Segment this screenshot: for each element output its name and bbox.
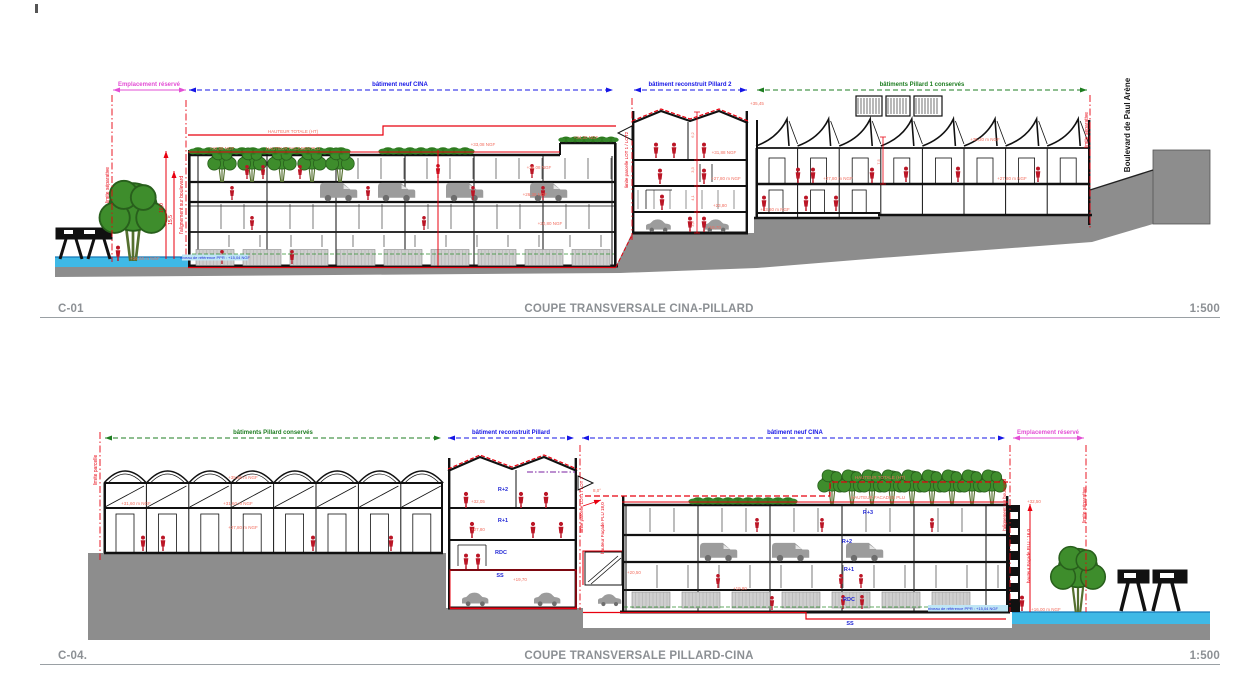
garage-door	[290, 250, 328, 266]
annotation-label: +20,50	[627, 570, 641, 575]
annotation-label: niveau de référence PPR : +15,04 NGF	[180, 255, 250, 260]
c01-title: COUPE TRANSVERSALE CINA-PILLARD	[278, 303, 1000, 315]
garage-door	[682, 592, 720, 608]
span-label-emplacement-reserve: Emplacement réservé	[1017, 430, 1080, 436]
balcony-slot	[1010, 528, 1018, 535]
garage-door	[732, 592, 770, 608]
garage-door	[572, 250, 610, 266]
annotation-label: +35,66 m NGF	[228, 475, 258, 480]
span-label-batiment-reconstruit-pillard-2: bâtiment reconstruit Pillard 2	[648, 82, 732, 88]
annotation-label: +20,80 NGF	[538, 221, 563, 226]
c04-scale: 1:500	[1000, 650, 1220, 662]
annotation-label: +32,05	[471, 499, 485, 504]
section-c04: bâtiments Pillard conservésbâtiment reco…	[88, 430, 1210, 640]
boundary-label: limite séparative	[1084, 112, 1090, 148]
balcony-slot	[1010, 576, 1018, 583]
annotation-label: +19,80	[733, 586, 747, 591]
annotation-label: +23,80 m NGF	[760, 207, 790, 212]
car-icon	[598, 594, 621, 606]
storey-label: SS	[846, 621, 854, 627]
storey-label: R+3	[863, 510, 873, 516]
annotation-label: +23,80	[713, 203, 727, 208]
dimension-label: 6,2	[690, 131, 695, 137]
storey-label: SS	[496, 573, 504, 579]
annotation-label: HAUTEUR FACADES PLU	[266, 146, 320, 151]
roof-shrub	[603, 136, 618, 142]
annotation-label: HAUTEUR TOTALE (HT)	[855, 475, 906, 480]
street-name: Boulevard de Paul Arène	[1123, 77, 1132, 172]
dimension-label: 4,1	[690, 194, 695, 200]
c04-batiment-neuf-cina	[620, 496, 1020, 612]
c01-ref: C-01	[40, 303, 278, 315]
boundary-label: limite séparative	[1082, 487, 1088, 523]
boundary-label: limite parcelle LOT 1 / LOT2	[624, 131, 629, 188]
c04-ref: C-04.	[40, 650, 278, 662]
dimension-label: 18,0	[159, 203, 165, 213]
dimension-label: 3,3	[690, 166, 695, 172]
c01-title-rule	[40, 317, 1220, 318]
large-tree	[1051, 547, 1106, 612]
garage-door	[431, 250, 469, 266]
storey-label: RDC	[843, 597, 855, 603]
span-label-batiment-neuf-cina: bâtiment neuf CINA	[372, 82, 428, 88]
c01-boulevard-wall	[1153, 150, 1210, 224]
annotation-label: +34,30 NGF	[574, 135, 599, 140]
c04-title-row: C-04. COUPE TRANSVERSALE PILLARD-CINA 1:…	[40, 650, 1220, 662]
annotation-label: +32,50	[1027, 499, 1041, 504]
drawing-sheet: Emplacement réservébâtiment neuf CINAbât…	[0, 0, 1260, 682]
annotation-label: +19,70	[707, 225, 721, 230]
storey-label: R+1	[844, 567, 854, 573]
annotation-label: +33,08 NGF	[471, 142, 496, 147]
c04-annex-structure	[583, 551, 622, 585]
annotation-label: +31,88 NGF	[712, 150, 737, 155]
annotation-label: +27,80 m NGF	[997, 176, 1027, 181]
garage-door	[478, 250, 516, 266]
c01-cina-garage-doors	[196, 250, 610, 266]
garage-door	[384, 250, 422, 266]
annotation-label: +30,08 NGF	[527, 165, 552, 170]
annotation-label: niveau de référence PPR : +15,04 NGF	[928, 606, 998, 611]
garage-door	[632, 592, 670, 608]
c01-water	[55, 257, 188, 267]
annotation-label: +27,80 m NGF	[711, 176, 741, 181]
boundary-label: l'alignement sur boulevard	[179, 176, 185, 234]
span-label-batiment-reconstruit-pillard: bâtiment reconstruit Pillard	[472, 430, 550, 436]
c04-title-rule	[40, 664, 1220, 665]
c04-batiment-reconstruit-pillard	[448, 455, 577, 608]
sheet-mark	[35, 4, 38, 13]
annotation-label: +16,00 m NGF	[1031, 607, 1061, 612]
annotation-label: HAUTEUR TOTALE (HT)	[268, 129, 319, 134]
c04-title: COUPE TRANSVERSALE PILLARD-CINA	[278, 650, 1000, 662]
c04-cina-garage-doors	[632, 592, 970, 608]
storey-label: R+1	[498, 518, 508, 524]
dimension-label: 7,5	[876, 158, 881, 164]
annotation-label: +35,30 m NGF	[970, 137, 1000, 142]
storey-label: R+2	[842, 539, 852, 545]
annotation-label: +31,60 m NGF	[223, 501, 253, 506]
balcony-slot	[1010, 592, 1018, 599]
span-label-batiments-pillard-conserves: bâtiments Pillard conservés	[233, 430, 313, 436]
balcony-slot	[1010, 512, 1018, 519]
c04-bridge-piers	[1118, 570, 1187, 611]
span-label-batiment-neuf-cina: bâtiment neuf CINA	[767, 430, 823, 436]
annotation-label: +31,60 m NGF	[121, 501, 151, 506]
c01-bridge-piers	[56, 228, 112, 259]
dimension-label: 3,8	[690, 220, 695, 226]
span-label-batiments-pillard-1-conserves: bâtiments Pillard 1 conservés	[880, 82, 965, 88]
garage-door	[882, 592, 920, 608]
boundary-label: l'alignement sur boulevard	[1002, 478, 1007, 531]
annotation-label: +27,80	[471, 527, 485, 532]
garage-door	[525, 250, 563, 266]
c04-water	[1012, 612, 1210, 624]
person-figure	[1020, 596, 1025, 611]
annotation-label: +27,80 m NGF	[823, 176, 853, 181]
section-c01: Emplacement réservébâtiment neuf CINAbât…	[55, 77, 1210, 277]
garage-door	[337, 250, 375, 266]
annotation-label: +27,80 m NGF	[228, 525, 258, 530]
annotation-label: +19,70	[513, 577, 527, 582]
garage-door	[782, 592, 820, 608]
balcony-slot	[1010, 560, 1018, 567]
dimension-label: 15,5	[168, 215, 174, 225]
storey-label: R+2	[498, 487, 508, 493]
storey-label: RDC	[495, 550, 507, 556]
annotation-label: +26,38 NGF	[523, 192, 548, 197]
boundary-label: limite parcelle LOT1 / LOT 2	[579, 476, 584, 533]
annotation-label: +35,45	[750, 101, 764, 106]
boundary-label: limite séparative	[105, 167, 111, 203]
annotation-label: +16,00 m NGF	[130, 256, 160, 261]
annotation-label: 8,0°	[593, 488, 601, 493]
span-label-emplacement-reserve: Emplacement réservé	[118, 82, 181, 88]
c01-title-row: C-01 COUPE TRANSVERSALE CINA-PILLARD 1:5…	[40, 303, 1220, 315]
sections-canvas: Emplacement réservébâtiment neuf CINAbât…	[0, 0, 1260, 682]
dimension-label: hauteur Façade PLU 18,0	[600, 502, 605, 554]
boundary-label: limite parcelle	[93, 455, 99, 486]
c01-scale: 1:500	[1000, 303, 1220, 315]
annotation-label: +32,88 NGF	[210, 146, 235, 151]
dimension-label: hauteur Façade PLU : 16,0	[1026, 528, 1031, 583]
annotation-label: HAUTEUR FACADES PLU	[851, 495, 905, 500]
balcony-slot	[1010, 544, 1018, 551]
